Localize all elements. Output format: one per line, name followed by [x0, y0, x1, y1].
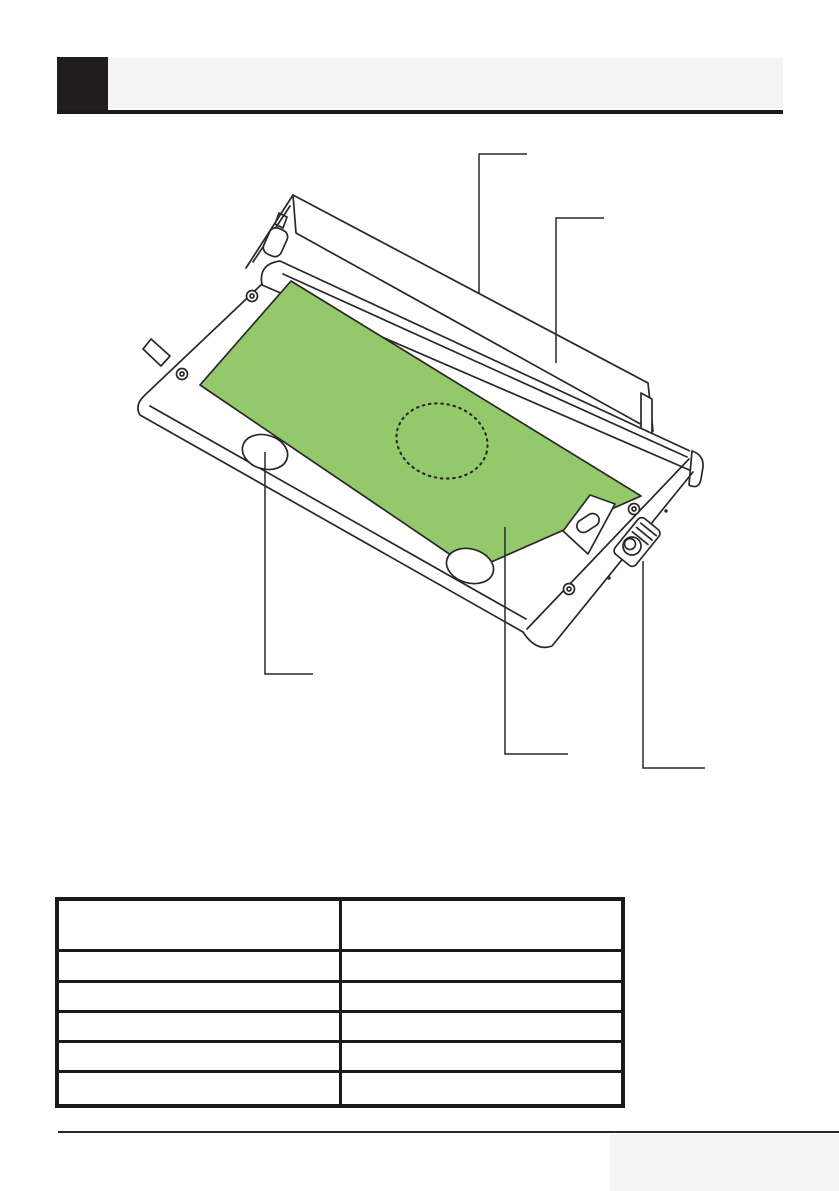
- table-row: [57, 1042, 623, 1072]
- table-row: [57, 899, 623, 951]
- manual-page: [0, 0, 839, 1191]
- screw-icon: [177, 369, 188, 380]
- table-cell: [340, 982, 623, 1012]
- table-cell: [340, 1072, 623, 1107]
- callout-slide-switch: [643, 561, 705, 768]
- callout-air-outlet-top: [479, 154, 527, 293]
- table-cell: [57, 951, 340, 982]
- pin-dot: [607, 576, 610, 579]
- table-cell: [340, 899, 623, 951]
- screw-icon: [564, 584, 575, 595]
- pin-dot: [664, 509, 667, 512]
- table-cell: [340, 1042, 623, 1072]
- table-cell: [340, 1012, 623, 1042]
- page-number-box: [610, 1134, 839, 1191]
- table-cell: [57, 982, 340, 1012]
- screw-icon: [247, 291, 258, 302]
- table-row: [57, 951, 623, 982]
- screw-icon: [629, 504, 640, 515]
- table-cell: [57, 1042, 340, 1072]
- table-row: [57, 1072, 623, 1107]
- spec-table: [55, 897, 625, 1108]
- strip-end-cap: [689, 451, 703, 487]
- table-row: [57, 1012, 623, 1042]
- mounting-bracket: [143, 339, 170, 366]
- table-cell: [57, 1072, 340, 1107]
- table-cell: [340, 951, 623, 982]
- table-row: [57, 982, 623, 1012]
- table-cell: [57, 1012, 340, 1042]
- table-cell: [57, 899, 340, 951]
